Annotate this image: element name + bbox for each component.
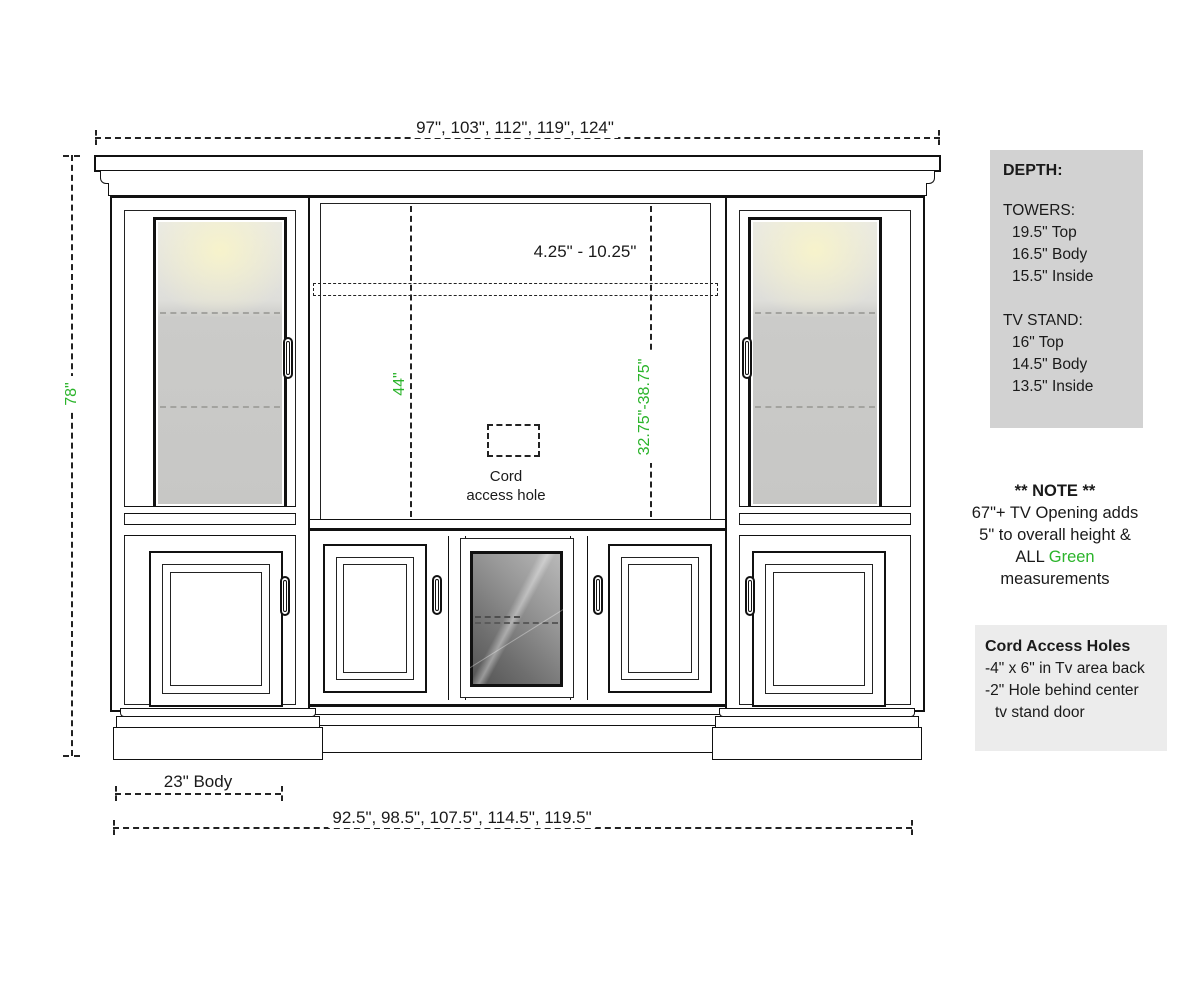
shelf-line — [755, 406, 875, 408]
left-tower-lower-door-panel — [170, 572, 262, 686]
tower-body-depth-label: 23" Body — [160, 772, 236, 792]
tv-stand-right-door-panel — [628, 564, 692, 673]
cord-box-line: -2" Hole behind center — [985, 680, 1167, 702]
left-tower-lower-handle — [280, 576, 290, 616]
tower-body-depth-line — [115, 793, 281, 795]
right-tower-base-plinth — [712, 727, 922, 760]
overall-height-tick-bottom — [63, 755, 80, 757]
right-tower-lower-handle — [745, 576, 755, 616]
right-tower-mid-rail — [739, 524, 911, 536]
tv-opening-height-label: 44" — [391, 366, 409, 402]
crown-range-label: 4.25" - 10.25" — [530, 242, 641, 262]
overall-width-tick-right — [938, 130, 940, 145]
cord-box-line: -4" x 6" in Tv area back — [985, 658, 1167, 680]
note-line: 67"+ TV Opening adds — [945, 502, 1165, 524]
right-tower-lower-door-panel — [773, 572, 865, 686]
tv-stand-left-door-handle — [432, 575, 442, 615]
tv-stand-heading: TV STAND: — [1003, 310, 1143, 332]
shelf-line — [160, 406, 280, 408]
right-tower-glass — [753, 222, 877, 504]
shelf-line — [160, 312, 280, 314]
tower-body-depth-tick-right — [281, 786, 283, 801]
shelf-line — [755, 312, 875, 314]
green-word: Green — [1049, 548, 1095, 566]
tv-stand-right-door-handle — [593, 575, 603, 615]
cord-access-hole-rect — [487, 424, 540, 457]
overall-width-label: 97", 103", 112", 119", 124" — [412, 118, 618, 138]
tv-stand-depth-item: 13.5" Inside — [1003, 376, 1143, 398]
body-width-label: 92.5", 98.5", 107.5", 114.5", 119.5" — [328, 808, 595, 828]
towers-depth-item: 16.5" Body — [1003, 244, 1143, 266]
tv-stand-top — [303, 519, 733, 529]
left-tower-glass — [158, 222, 282, 504]
left-tower-upper-handle — [283, 337, 293, 379]
cord-box-title: Cord Access Holes — [985, 636, 1167, 658]
right-tower-upper-handle — [742, 337, 752, 379]
tv-stand-stile — [587, 536, 588, 700]
body-width-tick-left — [113, 820, 115, 835]
note-line: measurements — [945, 568, 1165, 590]
depth-info-box: DEPTH: TOWERS: 19.5" Top 16.5" Body 15.5… — [990, 150, 1143, 428]
cord-access-hole-label-line2: access hole — [466, 487, 545, 504]
body-width-tick-right — [911, 820, 913, 835]
left-tower-base-plinth — [113, 727, 323, 760]
tv-stand-left-door-panel — [343, 564, 407, 673]
overall-height-tick-top — [63, 155, 80, 157]
overall-width-tick-left — [95, 130, 97, 145]
tower-body-depth-tick-left — [115, 786, 117, 801]
right-tower-mid-rail — [739, 506, 911, 514]
adjustable-band-rect — [313, 283, 718, 296]
cord-box-line: tv stand door — [985, 702, 1167, 724]
note-title: ** NOTE ** — [945, 480, 1165, 502]
cord-access-holes-box: Cord Access Holes -4" x 6" in Tv area ba… — [975, 625, 1167, 751]
overall-height-dimension-line — [71, 155, 73, 756]
cord-access-hole-label-line1: Cord — [490, 468, 523, 485]
crown-dim-line-left — [410, 206, 412, 517]
note-line: 5" to overall height & — [945, 524, 1165, 546]
left-tower-mid-rail — [124, 524, 296, 536]
crown-molding-base — [108, 183, 927, 196]
towers-heading: TOWERS: — [1003, 200, 1143, 222]
note-line-green: ALL Green — [945, 546, 1165, 568]
tv-stand-depth-item: 14.5" Body — [1003, 354, 1143, 376]
left-tower-mid-rail — [124, 506, 296, 514]
towers-depth-item: 15.5" Inside — [1003, 266, 1143, 288]
overall-height-label: 78" — [63, 376, 81, 412]
tv-stand-stile — [448, 536, 449, 700]
note-block: ** NOTE ** 67"+ TV Opening adds 5" to ov… — [945, 480, 1165, 590]
crown-molding-top — [94, 155, 941, 172]
tv-stand-center-glass — [470, 551, 563, 687]
towers-depth-item: 19.5" Top — [1003, 222, 1143, 244]
tv-height-range-label: 32.75"-38.75" — [636, 351, 654, 463]
tv-stand-base-plinth — [313, 725, 723, 753]
depth-title: DEPTH: — [1003, 160, 1143, 182]
entertainment-center-drawing: 97", 103", 112", 119", 124" 78" 4.25" - … — [0, 0, 1200, 1000]
tv-stand-depth-item: 16" Top — [1003, 332, 1143, 354]
